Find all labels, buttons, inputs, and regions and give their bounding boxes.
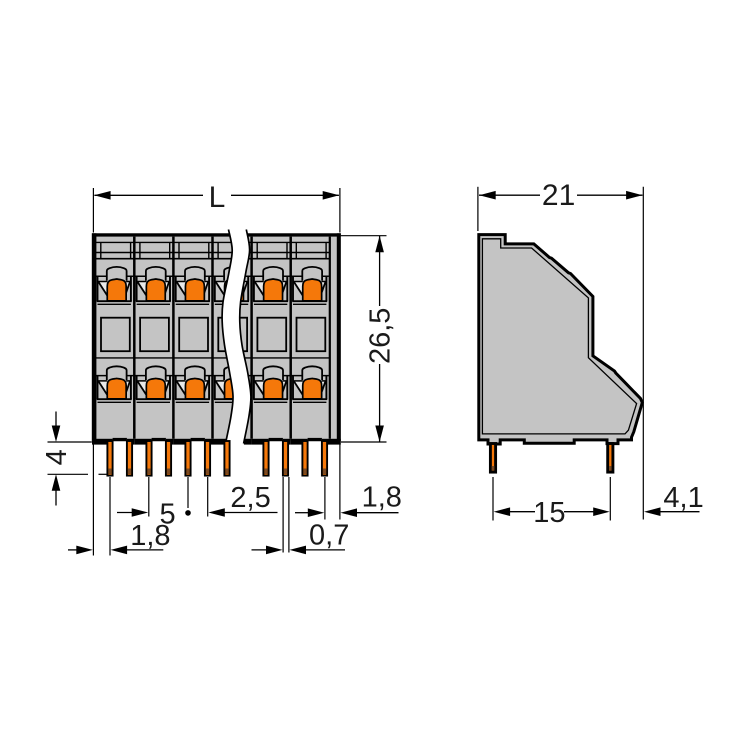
svg-text:15: 15	[533, 497, 565, 529]
svg-text:0,7: 0,7	[309, 520, 349, 552]
svg-text:2,5: 2,5	[230, 482, 270, 514]
svg-text:1,8: 1,8	[362, 482, 402, 514]
svg-text:L: L	[209, 181, 226, 214]
svg-text:26,5: 26,5	[365, 308, 397, 364]
svg-text:21: 21	[542, 179, 575, 212]
svg-text:4: 4	[41, 449, 73, 465]
svg-text:4,1: 4,1	[663, 482, 703, 514]
svg-text:1,8: 1,8	[130, 520, 170, 552]
